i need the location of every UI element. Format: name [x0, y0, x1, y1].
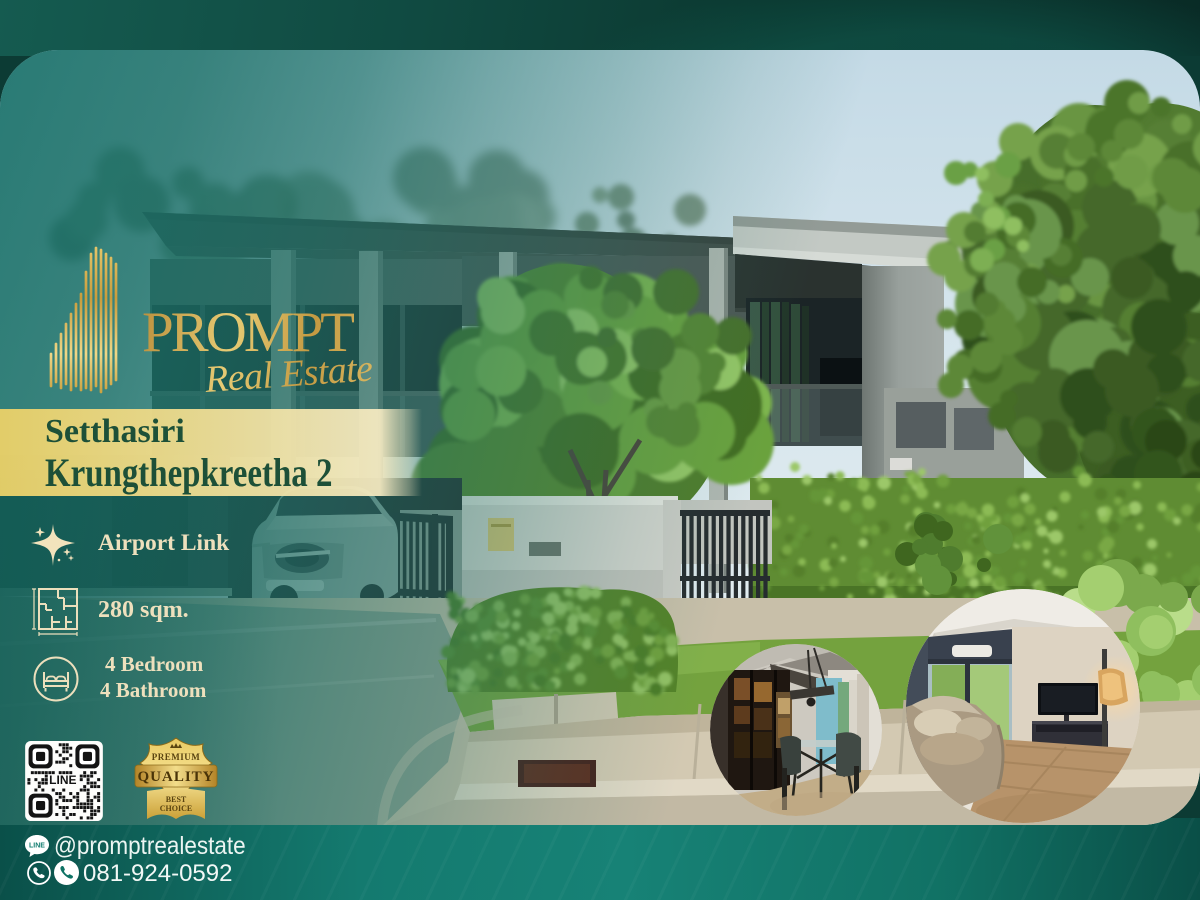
svg-text:CHOICE: CHOICE [160, 804, 192, 813]
svg-text:PREMIUM: PREMIUM [152, 752, 201, 762]
svg-text:LINE: LINE [29, 843, 45, 850]
svg-text:QUALITY: QUALITY [137, 769, 214, 785]
svg-text:LINE: LINE [49, 773, 76, 787]
svg-text:BEST: BEST [166, 795, 187, 804]
